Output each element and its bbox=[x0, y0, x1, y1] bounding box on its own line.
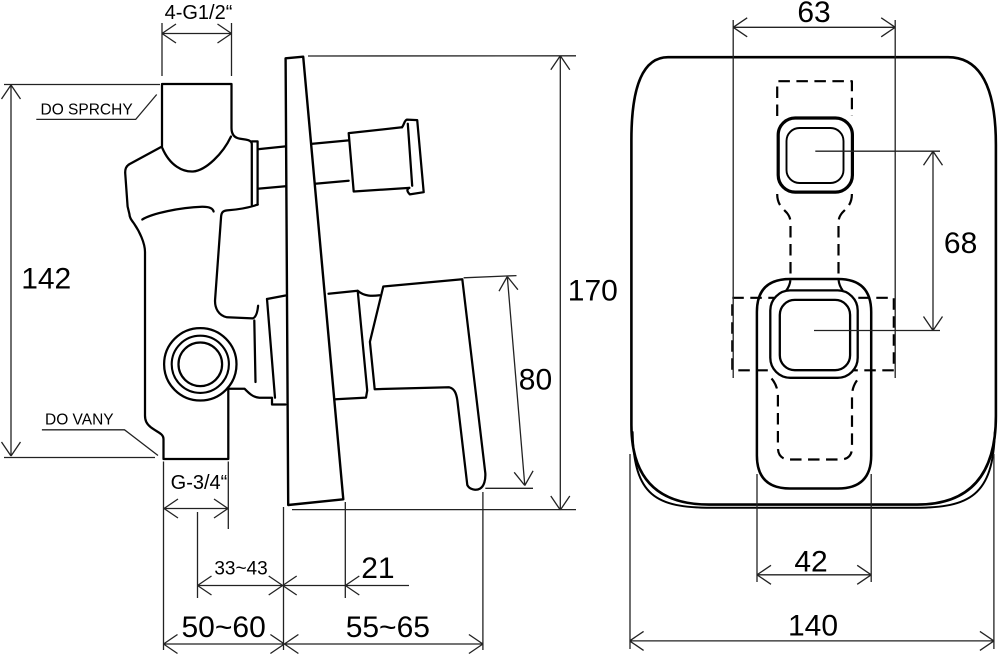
svg-text:55~65: 55~65 bbox=[346, 611, 430, 644]
svg-text:42: 42 bbox=[794, 546, 827, 579]
svg-text:63: 63 bbox=[797, 0, 830, 29]
svg-text:140: 140 bbox=[788, 610, 838, 643]
svg-text:4-G1/2“: 4-G1/2“ bbox=[165, 2, 233, 24]
svg-text:80: 80 bbox=[519, 364, 552, 397]
svg-text:50~60: 50~60 bbox=[182, 611, 266, 644]
svg-text:DO VANY: DO VANY bbox=[45, 412, 114, 429]
svg-text:33~43: 33~43 bbox=[214, 559, 267, 580]
svg-text:68: 68 bbox=[944, 227, 977, 260]
svg-text:G-3/4“: G-3/4“ bbox=[171, 472, 228, 494]
svg-text:DO SPRCHY: DO SPRCHY bbox=[41, 102, 133, 119]
svg-text:21: 21 bbox=[361, 552, 394, 585]
svg-text:170: 170 bbox=[568, 275, 618, 308]
svg-text:142: 142 bbox=[21, 262, 71, 295]
